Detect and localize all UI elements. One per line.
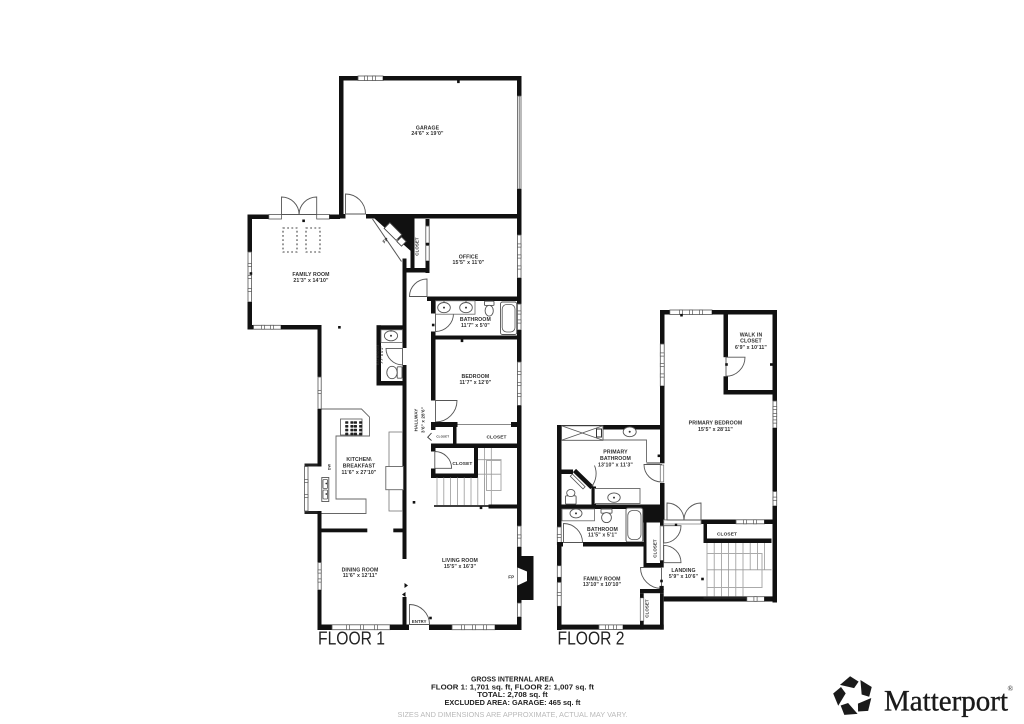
svg-text:CLOSET: CLOSET	[452, 461, 472, 467]
svg-text:FP: FP	[508, 574, 514, 579]
svg-text:PRIMARY BEDROOM: PRIMARY BEDROOM	[689, 421, 743, 427]
svg-text:CLOSET: CLOSET	[717, 532, 737, 538]
svg-text:21’3" x 14’10": 21’3" x 14’10"	[293, 278, 329, 284]
svg-text:11’6" x 27’10": 11’6" x 27’10"	[342, 470, 377, 476]
svg-text:BREAKFAST: BREAKFAST	[343, 464, 376, 470]
svg-text:BATHROOM: BATHROOM	[600, 456, 631, 462]
svg-text:FLOOR 1: FLOOR 1	[318, 628, 385, 649]
svg-text:15’5" x 16’3": 15’5" x 16’3"	[444, 564, 477, 570]
svg-text:KITCHEN\: KITCHEN\	[346, 457, 372, 463]
svg-text:CLOSET: CLOSET	[414, 237, 419, 256]
svg-text:DW: DW	[328, 463, 332, 470]
svg-text:FLOOR 2: FLOOR 2	[558, 628, 625, 649]
svg-text:11’5" x 5’1": 11’5" x 5’1"	[588, 532, 617, 538]
svg-text:CLOSET: CLOSET	[436, 435, 449, 439]
svg-text:13’10" x 11’3": 13’10" x 11’3"	[598, 462, 633, 468]
svg-text:6’9" x 10’11": 6’9" x 10’11"	[735, 345, 767, 351]
svg-text:PRIMARY: PRIMARY	[603, 450, 628, 456]
svg-text:11’6" x 12’11": 11’6" x 12’11"	[343, 573, 378, 579]
svg-text:3’6" x 28’6": 3’6" x 28’6"	[421, 407, 426, 433]
svg-text:13’10" x 10’10": 13’10" x 10’10"	[583, 582, 622, 588]
svg-text:7’7" x 4’1": 7’7" x 4’1"	[380, 346, 384, 364]
svg-text:CLOSET: CLOSET	[653, 539, 658, 558]
svg-text:CLOSET: CLOSET	[740, 339, 762, 345]
svg-text:CLOSET: CLOSET	[644, 599, 649, 618]
svg-text:15’5" x 11’0": 15’5" x 11’0"	[453, 260, 485, 266]
svg-text:11’7" x 12’0": 11’7" x 12’0"	[459, 380, 491, 386]
svg-text:HALLWAY: HALLWAY	[414, 409, 419, 432]
svg-text:24’6" x 19’0": 24’6" x 19’0"	[411, 131, 444, 137]
svg-text:5’9" x 10’6": 5’9" x 10’6"	[669, 574, 699, 580]
svg-text:15’5" x 28’11": 15’5" x 28’11"	[698, 427, 733, 433]
svg-text:ENTRY: ENTRY	[412, 619, 427, 624]
svg-text:Matterport: Matterport	[884, 685, 1009, 718]
svg-text:®: ®	[1008, 684, 1014, 693]
svg-text:CLOSET: CLOSET	[486, 435, 506, 441]
svg-text:11’7" x 5’0": 11’7" x 5’0"	[461, 323, 490, 329]
svg-text:EXCLUDED AREA: GARAGE: 465 sq.: EXCLUDED AREA: GARAGE: 465 sq. ft	[445, 698, 582, 707]
svg-text:SIZES AND DIMENSIONS ARE APPRO: SIZES AND DIMENSIONS ARE APPROXIMATE, AC…	[398, 710, 628, 719]
